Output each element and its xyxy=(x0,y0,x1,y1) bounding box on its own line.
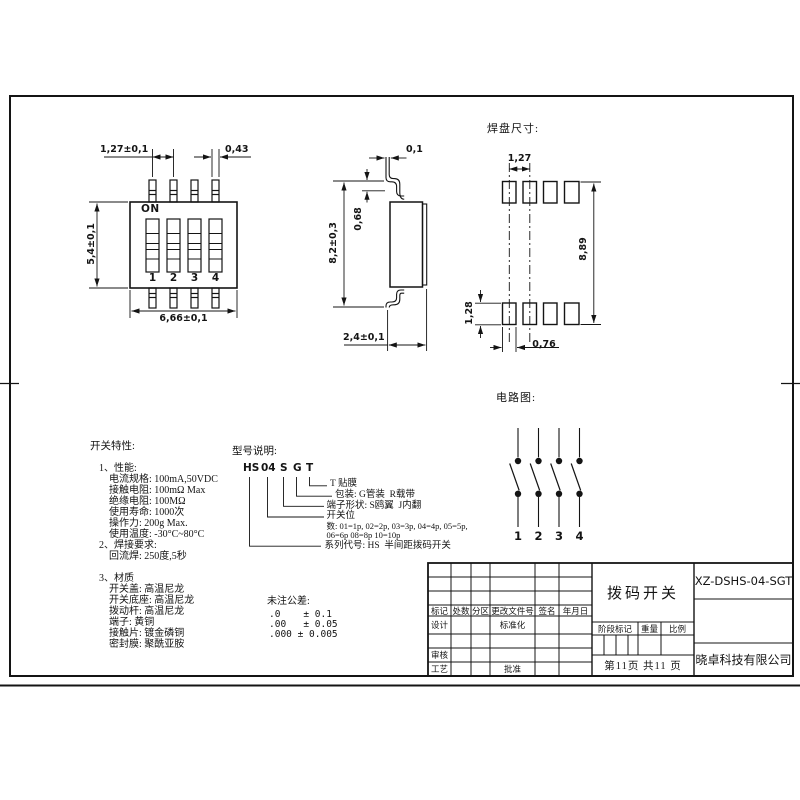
check-label: 审核 xyxy=(428,648,451,662)
model-title: 型号说明: xyxy=(232,446,277,457)
scale-label: 比例 xyxy=(661,622,694,635)
characteristics-line: 开关盖: 高温尼龙 xyxy=(109,585,184,596)
pad-layout-title: 焊盘尺寸: xyxy=(487,124,539,136)
process-label: 工艺 xyxy=(428,662,451,676)
tolerance-title: 未注公差: xyxy=(267,597,310,608)
circuit-position-1: 1 xyxy=(512,530,524,542)
dim-front-body-height: 5,4±0,1 xyxy=(87,219,97,269)
model-code-positions: 04 xyxy=(261,463,276,474)
switch-body-side xyxy=(390,202,423,287)
characteristics-line: 拨动杆: 高温尼龙 xyxy=(109,607,184,618)
model-code-terminal: S xyxy=(280,463,288,474)
rev-header-doc-no: 更改文件号 xyxy=(490,605,535,616)
page-info: 第11页 共11 页 xyxy=(592,655,694,676)
model-code-leaders xyxy=(250,477,333,546)
rev-header-signature: 签名 xyxy=(535,605,559,616)
characteristics-line: 绝缘电阻: 100MΩ xyxy=(109,497,186,508)
dim-pad-pitch: 1,27 xyxy=(505,154,534,164)
dim-depth: 2,4±0,1 xyxy=(343,333,385,343)
contact-dots xyxy=(515,458,583,497)
weight-label: 重量 xyxy=(638,622,661,635)
dim-pad-height: 1,28 xyxy=(465,287,475,337)
model-legend-terminal: 端子形状: S鸥翼 J内翻 xyxy=(327,502,422,512)
front-position-2: 2 xyxy=(168,273,180,284)
product-name: 拨码开关 xyxy=(592,563,694,622)
characteristics-line: 使用温度: -30°C~80°C xyxy=(109,530,204,541)
model-code-packing: G xyxy=(293,463,302,474)
characteristics-line: 电流规格: 100mA,50VDC xyxy=(109,475,218,486)
side-dimension-lines xyxy=(333,158,427,351)
gull-wing-leads xyxy=(386,157,404,308)
characteristics-line: 端子: 黄铜 xyxy=(109,618,154,629)
tolerance-row: .000 ± 0.005 xyxy=(269,630,338,640)
solder-pads xyxy=(503,182,580,325)
on-label: ON xyxy=(141,204,160,215)
approve-label: 批准 xyxy=(490,662,535,676)
circuit-position-3: 3 xyxy=(553,530,565,542)
model-legend-positions-2: 06=6p 08=8p 10=10p xyxy=(327,531,401,540)
characteristics-line: 回流焊: 250度,5秒 xyxy=(109,552,187,563)
dim-pad-span: 8,89 xyxy=(579,224,589,274)
model-legend-tape: T 贴膜 xyxy=(330,480,357,490)
model-code-series: HS xyxy=(243,463,259,474)
standardization-label: 标准化 xyxy=(490,616,535,634)
slider-channels xyxy=(146,219,222,272)
model-code-tape: T xyxy=(306,463,313,474)
characteristics-line: 开关底座: 高温尼龙 xyxy=(109,596,194,607)
rev-header-date: 年月日 xyxy=(559,605,592,616)
characteristics-line: 3、材质 xyxy=(99,574,134,585)
circuit-position-4: 4 xyxy=(574,530,586,542)
dim-front-body-width: 6,66±0,1 xyxy=(156,314,211,324)
side-view xyxy=(333,157,427,351)
circuit-diagram xyxy=(510,428,583,527)
dim-front-pin-width: 0,43 xyxy=(225,145,248,155)
rev-header-count: 处数 xyxy=(451,605,471,616)
dim-lead-thickness: 0,1 xyxy=(406,145,423,155)
engineering-drawing-sheet: { "front_view": { "on_label": "ON", "pos… xyxy=(0,0,800,800)
tolerance-row: .00 ± 0.05 xyxy=(269,620,338,630)
company-name: 晓卓科技有限公司 xyxy=(694,643,793,676)
dim-standoff: 0,68 xyxy=(354,194,364,244)
characteristics-line: 接触片: 镀金磷铜 xyxy=(109,629,184,640)
dim-total-height: 8,2±0,3 xyxy=(329,218,339,268)
rev-header-mark: 标记 xyxy=(428,605,451,616)
circuit-position-2: 2 xyxy=(533,530,545,542)
front-position-1: 1 xyxy=(147,273,159,284)
design-label: 设计 xyxy=(428,616,451,634)
front-view xyxy=(89,149,251,318)
characteristics-line: 2、焊接要求: xyxy=(99,541,157,552)
front-position-3: 3 xyxy=(189,273,201,284)
characteristics-line: 接触电阻: 100mΩ Max xyxy=(109,486,205,497)
part-number: XZ-DSHS-04-SGT xyxy=(694,563,793,599)
characteristics-title: 开关特性: xyxy=(90,441,135,452)
front-position-4: 4 xyxy=(210,273,222,284)
tolerance-row: .0 ± 0.1 xyxy=(269,610,332,620)
model-legend-series: 系列代号: HS 半间距拨码开关 xyxy=(325,542,451,552)
model-legend-packing: 包装: G管装 R载带 xyxy=(335,491,415,501)
rev-header-zone: 分区 xyxy=(471,605,490,616)
dim-pad-width: 0,76 xyxy=(530,340,558,350)
characteristics-line: 操作力: 200g Max. xyxy=(109,519,188,530)
characteristics-line: 密封膜: 聚酰亚胺 xyxy=(109,640,184,651)
characteristics-line: 使用寿命: 1000次 xyxy=(109,508,184,519)
dim-front-pitch: 1,27±0,1 xyxy=(100,145,145,155)
drawing-linework xyxy=(0,0,800,800)
stage-label: 阶段标记 xyxy=(592,622,638,635)
circuit-title: 电路图: xyxy=(496,393,536,405)
pad-centerlines xyxy=(509,163,530,342)
characteristics-line: 1、性能: xyxy=(99,464,137,475)
